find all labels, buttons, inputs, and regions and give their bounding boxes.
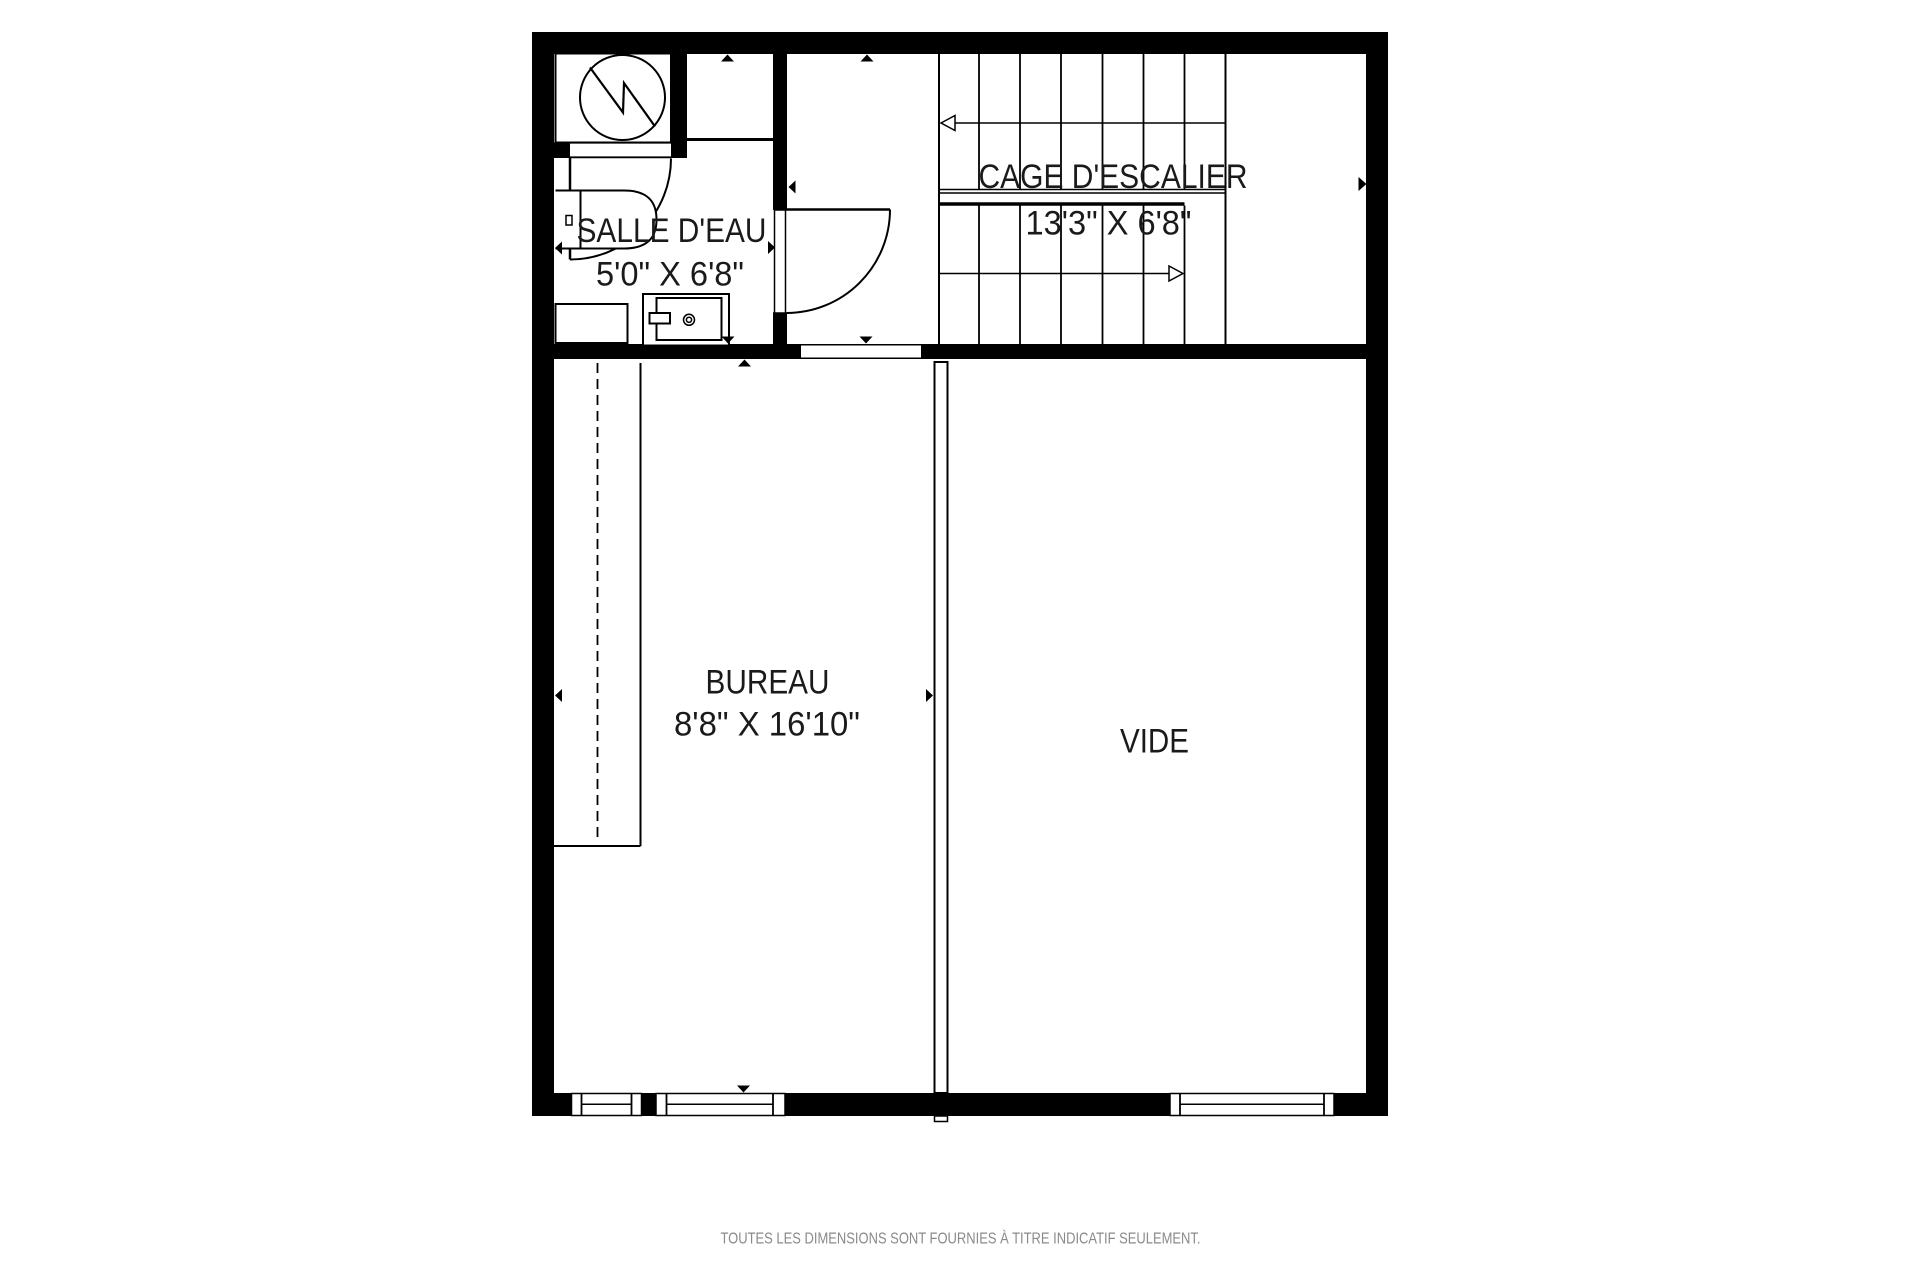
- svg-text:TOUTES LES DIMENSIONS SONT FOU: TOUTES LES DIMENSIONS SONT FOURNIES À TI…: [721, 1228, 1201, 1247]
- svg-text:13'3" X 6'8": 13'3" X 6'8": [1026, 205, 1192, 243]
- svg-text:SALLE D'EAU: SALLE D'EAU: [577, 212, 767, 250]
- svg-text:8'8" X 16'10": 8'8" X 16'10": [674, 706, 860, 744]
- svg-text:BUREAU: BUREAU: [706, 664, 830, 702]
- svg-text:CAGE D'ESCALIER: CAGE D'ESCALIER: [979, 158, 1248, 196]
- svg-text:5'0" X 6'8": 5'0" X 6'8": [596, 256, 744, 294]
- svg-text:VIDE: VIDE: [1120, 723, 1189, 761]
